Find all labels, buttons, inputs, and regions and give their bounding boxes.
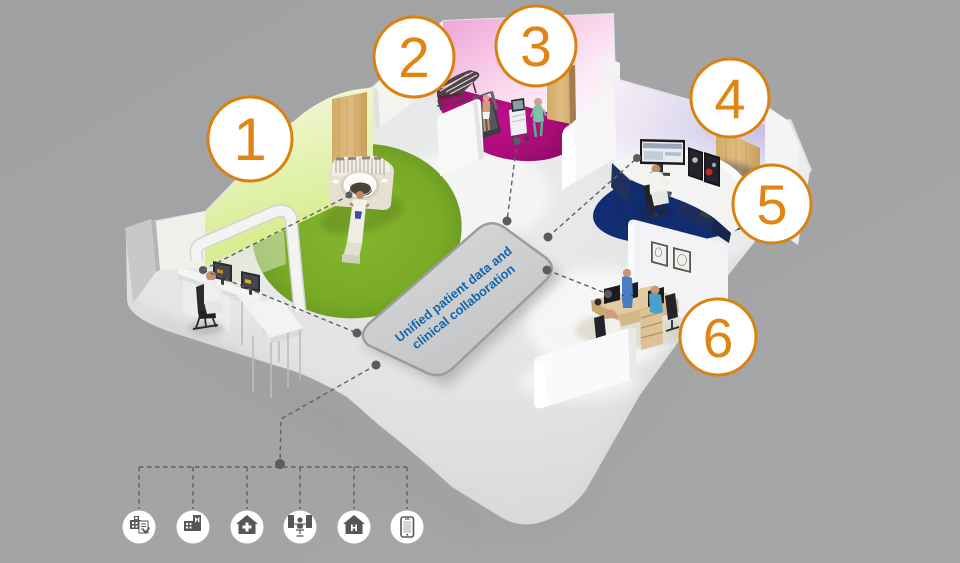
svg-text:1: 1 [233, 106, 266, 173]
svg-text:6: 6 [703, 307, 734, 369]
svg-text:4: 4 [714, 67, 745, 130]
svg-text:3: 3 [520, 15, 552, 79]
svg-text:2: 2 [398, 26, 430, 90]
svg-text:5: 5 [756, 173, 787, 236]
